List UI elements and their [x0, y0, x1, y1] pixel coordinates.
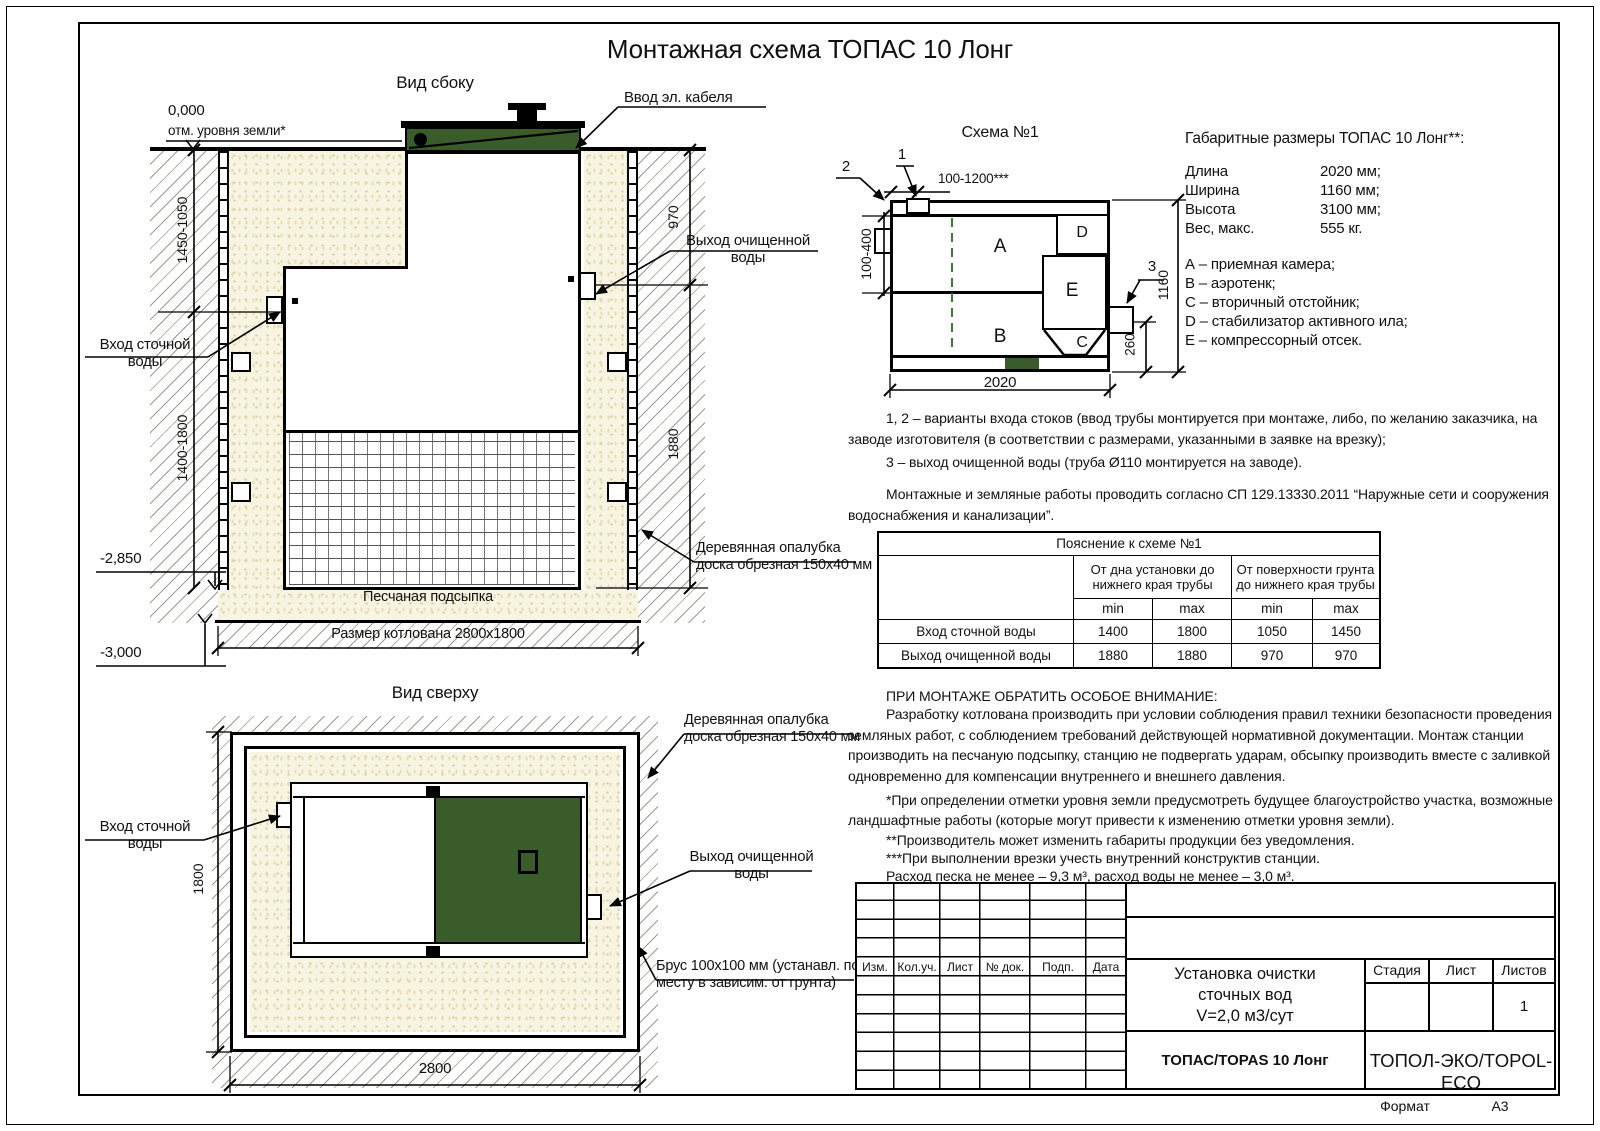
- cell-value: 1050: [1232, 620, 1313, 644]
- tb-company: ТОПОЛ-ЭКО/TOPOL-ECO: [1366, 1050, 1556, 1094]
- tb-sheet-label: Лист: [1430, 962, 1492, 978]
- marker-2: 2: [836, 158, 856, 175]
- dim-2020: 2020: [960, 374, 1040, 391]
- dim-row-label: Длина: [1185, 163, 1315, 180]
- legend-item: С – вторичный отстойник;: [1185, 294, 1545, 311]
- table-empty-cell: [878, 556, 1074, 620]
- dim-row-label: Вес, макс.: [1185, 220, 1315, 237]
- compartment-a: A: [980, 238, 1020, 255]
- explanation-table: Пояснение к схеме №1 От дна установки до…: [877, 531, 1381, 669]
- outlet-mark-dot: [568, 276, 574, 282]
- compartment-e: E: [1052, 282, 1092, 299]
- schema-inlet-1: [906, 198, 930, 214]
- formwork-left: [218, 151, 229, 590]
- dim-2800: 2800: [395, 1060, 475, 1077]
- dim-100-1200: 100-1200***: [938, 170, 1048, 187]
- attention-p2: *При определении отметки уровня земли пр…: [848, 790, 1562, 830]
- cell-value: 970: [1313, 644, 1381, 669]
- legend-item: В – аэротенк;: [1185, 275, 1545, 292]
- tb-hline: [1125, 1030, 1556, 1032]
- inlet-fitting-top: [276, 802, 292, 828]
- table-colgroup-1: От дна установки до нижнего края трубы: [1074, 556, 1232, 599]
- top-view-title: Вид сверху: [375, 684, 495, 701]
- formwork-label-top: Деревянная опалубка доска обрезная 150х4…: [684, 712, 864, 746]
- dim-100-400: 100-400: [858, 214, 874, 294]
- formwork-label-side: Деревянная опалубка доска обрезная 150х4…: [696, 540, 876, 574]
- format-label: Формат: [1370, 1098, 1440, 1114]
- tb-col-koluch: Кол.уч.: [894, 960, 940, 974]
- legend-item: D – стабилизатор активного ила;: [1185, 313, 1545, 330]
- inlet-label-side: Вход сточной воды: [85, 336, 205, 370]
- dimensions-title: Габаритные размеры ТОПАС 10 Лонг**:: [1185, 130, 1555, 147]
- outlet-fitting-top: [586, 894, 602, 920]
- note-2: Монтажные и земляные работы проводить со…: [848, 484, 1550, 526]
- tb-stage-label: Стадия: [1366, 962, 1428, 978]
- schema-title: Схема №1: [930, 124, 1070, 141]
- lid-hinge-bottom: [426, 946, 440, 956]
- inlet-fitting-side: [266, 296, 283, 324]
- dim-1450-1050: 1450-1050: [174, 190, 190, 270]
- compartment-d: D: [1062, 224, 1102, 241]
- max-header: max: [1313, 599, 1381, 620]
- marker-1: 1: [892, 146, 912, 163]
- page-title: Монтажная схема ТОПАС 10 Лонг: [560, 34, 1060, 64]
- note-1b: 3 – выход очищенной воды (труба Ø110 мон…: [848, 452, 1556, 473]
- formwork-right: [627, 151, 638, 590]
- tank-neck: [405, 151, 581, 268]
- outlet-fitting-side: [579, 272, 596, 300]
- vent-cap: [508, 103, 546, 110]
- tb-sheets-value: 1: [1494, 998, 1554, 1015]
- outlet-label-side: Выход очищенной воды: [678, 232, 818, 266]
- formwork-spacer: [231, 352, 251, 372]
- formwork-spacer: [607, 482, 627, 502]
- tb-col-izm: Изм.: [856, 960, 894, 974]
- row-label: Вход сточной воды: [878, 620, 1074, 644]
- tb-col-list: Лист: [940, 960, 980, 974]
- table-title: Пояснение к схеме №1: [878, 532, 1380, 556]
- legend-item: Е – компрессорный отсек.: [1185, 332, 1545, 349]
- table-row: Выход очищенной воды 1880 1880 970 970: [878, 644, 1380, 669]
- cell-value: 970: [1232, 644, 1313, 669]
- vent-neck: [517, 109, 537, 122]
- legend-item: А – приемная камера;: [1185, 256, 1545, 273]
- lid-bolt-dot: [414, 133, 427, 146]
- inlet-label-top: Вход сточной воды: [85, 818, 205, 852]
- table-row: От дна установки до нижнего края трубы О…: [878, 556, 1380, 599]
- min-header: min: [1232, 599, 1313, 620]
- tank-inner-wall-line: [303, 798, 305, 942]
- title-block-grid: [855, 882, 1125, 1090]
- min-header: min: [1074, 599, 1153, 620]
- dim-row-value: 2020 мм;: [1320, 163, 1450, 180]
- dim-1880: 1880: [665, 404, 681, 484]
- cell-value: 1880: [1074, 644, 1153, 669]
- cell-value: 1400: [1074, 620, 1153, 644]
- outlet-label-top: Выход очищенной воды: [684, 848, 819, 882]
- tb-col-ndok: № док.: [980, 960, 1030, 974]
- cable-entry-label: Ввод эл. кабеля: [624, 89, 769, 106]
- note-1a: 1, 2 – варианты входа стоков (ввод трубы…: [848, 408, 1556, 450]
- dim-1400-1800: 1400-1800: [174, 408, 190, 488]
- side-view-title: Вид сбоку: [375, 74, 495, 91]
- level-zero-sub: отм. уровня земли*: [168, 122, 318, 139]
- tank-shoulder-line: [283, 266, 408, 269]
- pit-size-label: Размер котлована 2800х1800: [278, 626, 578, 643]
- doc-title: Установка очистки сточных вод V=2,0 м3/с…: [1127, 964, 1363, 1027]
- attention-p1: Разработку котлована производить при усл…: [848, 704, 1562, 786]
- cell-value: 1880: [1153, 644, 1232, 669]
- compartment-c: C: [1062, 334, 1102, 351]
- tank-green-lid-top: [434, 796, 582, 944]
- drawing-sheet: Монтажная схема ТОПАС 10 Лонг Вид сбоку …: [0, 0, 1600, 1131]
- max-header: max: [1153, 599, 1232, 620]
- format-value: А3: [1480, 1098, 1520, 1114]
- cell-value: 1800: [1153, 620, 1232, 644]
- beam-label: Брус 100х100 мм (устанавл. по месту в за…: [656, 958, 866, 992]
- formwork-spacer: [607, 352, 627, 372]
- dim-1160: 1160: [1155, 245, 1171, 325]
- hatch-square: [518, 850, 538, 874]
- level-3000: -3,000: [100, 644, 190, 661]
- table-colgroup-2: От поверхности грунта до нижнего края тр…: [1232, 556, 1381, 599]
- tb-model: ТОПАС/TOPAS 10 Лонг: [1127, 1052, 1363, 1069]
- dim-row-label: Высота: [1185, 201, 1315, 218]
- schema-bottom-strip: [893, 355, 1107, 358]
- dim-row-value: 3100 мм;: [1320, 201, 1450, 218]
- dim-260: 260: [1123, 305, 1138, 385]
- dim-row-value: 1160 мм;: [1320, 182, 1450, 199]
- table-row: Вход сточной воды 1400 1800 1050 1450: [878, 620, 1380, 644]
- pit-bottom-line: [215, 620, 641, 623]
- dim-row-label: Ширина: [1185, 182, 1315, 199]
- ballast-grid: [289, 433, 575, 585]
- level-2850: -2,850: [100, 550, 190, 567]
- schema-inlet-2: [874, 228, 892, 254]
- tb-col-podp: Подп.: [1030, 960, 1086, 974]
- lid-green-cover: [405, 127, 581, 152]
- dim-row-value: 555 кг.: [1320, 220, 1450, 237]
- tb-hline: [1125, 916, 1556, 918]
- row-label: Выход очищенной воды: [878, 644, 1074, 669]
- tb-col-data: Дата: [1086, 960, 1126, 974]
- tb-sheets-label: Листов: [1494, 962, 1554, 978]
- schema-ab-divider: [893, 291, 1048, 294]
- compartment-b: B: [980, 328, 1020, 345]
- schema-green-bar: [1005, 358, 1039, 369]
- cell-value: 1450: [1313, 620, 1381, 644]
- tb-hline: [1364, 982, 1556, 984]
- level-zero: 0,000: [168, 102, 248, 119]
- formwork-spacer: [231, 482, 251, 502]
- table-row: Пояснение к схеме №1: [878, 532, 1380, 556]
- sand-bedding-label: Песчаная подсыпка: [328, 589, 528, 606]
- inlet-mark-dot: [292, 298, 298, 304]
- lid-hinge-top: [426, 786, 440, 796]
